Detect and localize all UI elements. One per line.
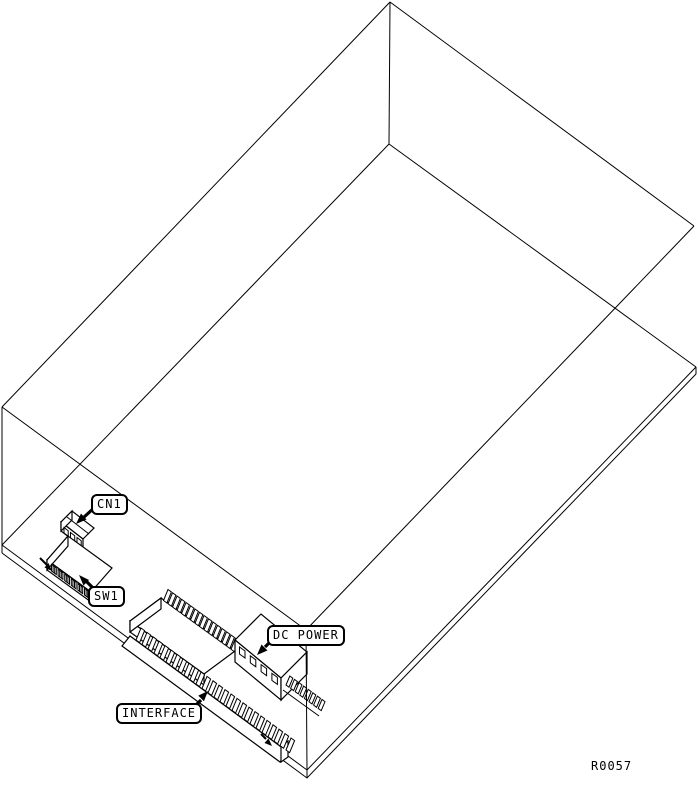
callout-interface-label: INTERFACE — [122, 706, 196, 720]
enclosure-wireframe — [2, 2, 696, 630]
callout-dc-power: DC POWER — [267, 625, 345, 646]
front-corner-edge — [306, 630, 307, 770]
figure-page: { "figure": { "reference_number": "R0057… — [0, 0, 698, 791]
callout-sw1-label: SW1 — [94, 589, 119, 603]
jumper-pins — [283, 676, 325, 716]
callout-interface: INTERFACE — [116, 703, 202, 724]
callout-cn1: CN1 — [91, 494, 128, 515]
diagram-canvas — [0, 0, 698, 791]
callout-dc-power-label: DC POWER — [273, 628, 339, 642]
isometric-drive-diagram: CN1 SW1 DC POWER INTERFACE R0057 — [0, 0, 698, 791]
callout-cn1-label: CN1 — [97, 497, 122, 511]
figure-reference-number: R0057 — [591, 759, 632, 773]
callout-sw1: SW1 — [88, 586, 125, 607]
